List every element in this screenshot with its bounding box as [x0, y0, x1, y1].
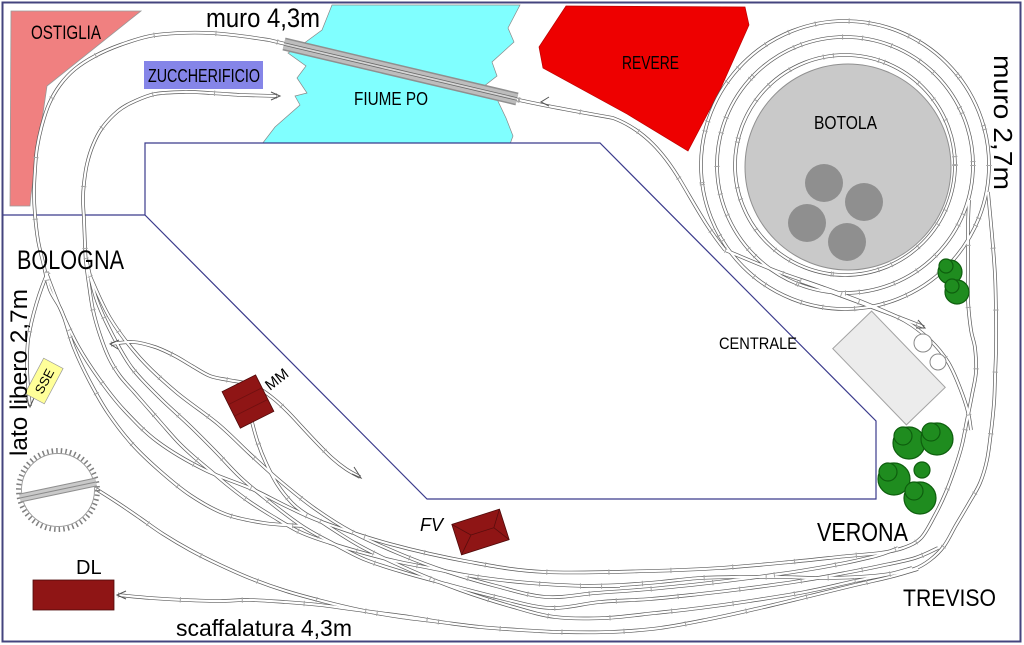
svg-text:BOTOLA: BOTOLA	[814, 113, 877, 133]
svg-text:REVERE: REVERE	[622, 53, 679, 73]
svg-text:ZUCCHERIFICIO: ZUCCHERIFICIO	[148, 66, 260, 86]
svg-text:VERONA: VERONA	[817, 517, 909, 547]
svg-text:CENTRALE: CENTRALE	[719, 334, 797, 353]
svg-text:muro 4,3m: muro 4,3m	[206, 3, 320, 33]
svg-text:TREVISO: TREVISO	[903, 585, 996, 612]
svg-text:muro 2,7m: muro 2,7m	[988, 55, 1018, 190]
svg-text:BOLOGNA: BOLOGNA	[17, 245, 124, 275]
svg-text:scaffalatura 4,3m: scaffalatura 4,3m	[176, 615, 352, 641]
svg-text:DL: DL	[76, 557, 102, 579]
svg-text:lato libero 2,7m: lato libero 2,7m	[6, 289, 33, 456]
svg-text:FIUME PO: FIUME PO	[354, 89, 428, 109]
svg-text:FV: FV	[420, 515, 445, 535]
svg-text:OSTIGLIA: OSTIGLIA	[31, 23, 101, 44]
